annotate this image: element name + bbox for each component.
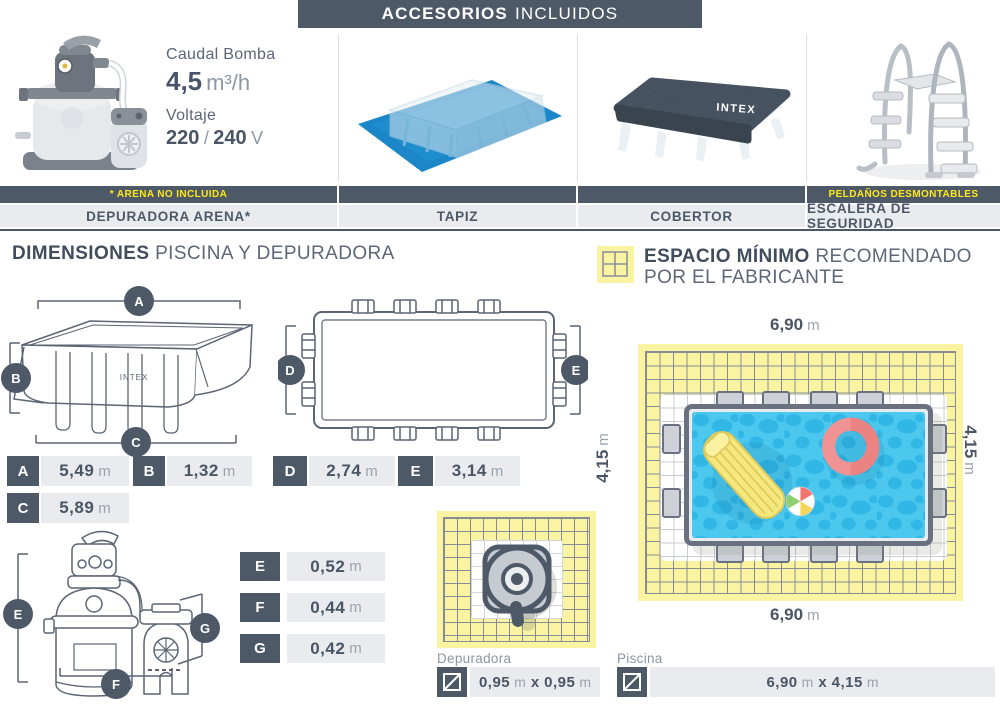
flow-unit: m³/h	[206, 70, 250, 95]
svg-text:F: F	[112, 677, 120, 692]
svg-text:C: C	[131, 435, 141, 450]
diagonal-icon	[622, 672, 642, 692]
pool-leg	[810, 544, 838, 563]
note-bar	[578, 186, 805, 203]
note-bar	[339, 186, 576, 203]
footprint-icon-depuradora	[437, 667, 467, 697]
dimensions-title: DIMENSIONES PISCINA Y DEPURADORA	[12, 243, 395, 265]
badge-d: D	[278, 355, 305, 385]
pump-badge-g: G	[240, 634, 280, 663]
svg-text:G: G	[200, 621, 210, 636]
infographic-page: ACCESORIOS INCLUIDOS Caudal Bomba 4,5m³/…	[0, 0, 1000, 709]
dimensions-title-light: PISCINA Y DEPURADORA	[155, 243, 395, 264]
voltage-unit: V	[251, 128, 263, 148]
pump-specs: Caudal Bomba 4,5m³/h Voltaje 220 / 240 V	[166, 46, 338, 150]
svg-text:B: B	[11, 371, 20, 386]
filter-top-view	[469, 533, 565, 635]
pool-top-view-drawing: D E	[278, 290, 588, 450]
badge-b: B	[1, 363, 31, 393]
measure-badge-a: A	[7, 456, 39, 486]
space-height-label-left: 4,15m	[593, 433, 613, 483]
measure-value-c: 5,89m	[41, 493, 129, 523]
badge-pump-f: F	[101, 669, 131, 699]
pool-leg	[762, 544, 790, 563]
voltage-value-1: 220	[166, 127, 199, 149]
pool-leg	[662, 424, 681, 454]
note-arena: * ARENA NO INCLUIDA	[0, 186, 337, 203]
pump-line-drawing: E F G	[2, 524, 239, 708]
min-space-title: ESPACIO MÍNIMO RECOMENDADO POR EL FABRIC…	[644, 246, 972, 288]
column-divider	[806, 34, 807, 182]
label-escalera: ESCALERA DE SEGURIDAD	[807, 205, 1000, 227]
sand-filter-image	[5, 32, 157, 182]
voltage-value-line: 220 / 240 V	[166, 127, 338, 150]
pool-cover-image: INTEX	[588, 46, 803, 176]
flow-value: 4,5	[166, 66, 202, 96]
measure-badge-c: C	[7, 493, 39, 523]
badge-pump-e: E	[3, 599, 33, 629]
space-width-label-bottom: 6,90m	[770, 605, 820, 625]
note-peldanos-text: PELDAÑOS DESMONTABLES	[829, 189, 979, 200]
pump-badge-e: E	[240, 552, 280, 581]
pool-leg	[856, 544, 884, 563]
voltage-value-2: 240	[213, 127, 246, 149]
column-divider	[338, 34, 339, 182]
dimensions-title-bold: DIMENSIONES	[12, 243, 149, 264]
diagonal-icon	[442, 672, 462, 692]
label-cobertor: COBERTOR	[578, 205, 805, 227]
pool-water-graphic	[692, 412, 925, 538]
footprint-icon-piscina	[617, 667, 647, 697]
svg-text:E: E	[572, 363, 581, 378]
svg-text:D: D	[285, 363, 294, 378]
pool-brand-text: INTEX	[120, 373, 149, 382]
ground-cloth-image	[350, 40, 570, 180]
measure-value-a: 5,49m	[41, 456, 129, 486]
min-space-grid	[638, 344, 963, 601]
column-divider	[577, 34, 578, 182]
label-depuradora: DEPURADORA ARENA*	[0, 205, 337, 227]
space-height-label-right: 4,15m	[960, 425, 980, 475]
ladder-image	[845, 32, 995, 184]
pump-value-e: 0,52m	[287, 552, 385, 581]
badge-a: A	[124, 286, 154, 316]
flow-value-line: 4,5m³/h	[166, 66, 338, 97]
section-divider-line	[0, 229, 1000, 231]
badge-e: E	[561, 355, 588, 385]
min-space-title-light1: RECOMENDADO	[815, 246, 971, 267]
depuradora-footprint-label: Depuradora	[437, 651, 511, 666]
piscina-footprint-value: 6,90m x 4,15m	[650, 667, 995, 697]
label-tapiz: TAPIZ	[339, 205, 576, 227]
min-space-title-bold: ESPACIO MÍNIMO	[644, 246, 810, 267]
banner-title-bold: ACCESORIOS	[382, 4, 508, 24]
badge-c: C	[121, 427, 151, 457]
voltage-label: Voltaje	[166, 107, 338, 125]
measure-badge-d: D	[273, 456, 307, 486]
pump-value-f: 0,44m	[287, 593, 385, 622]
svg-text:E: E	[14, 607, 23, 622]
pool-leg	[716, 544, 744, 563]
min-space-title-light2: POR EL FABRICANTE	[644, 267, 972, 288]
measure-badge-e: E	[398, 456, 433, 486]
accessories-banner: ACCESORIOS INCLUIDOS	[298, 0, 702, 28]
depuradora-footprint-value: 0,95m x 0,95m	[470, 667, 600, 697]
measure-value-d: 2,74m	[309, 456, 395, 486]
filter-space-grid	[437, 511, 596, 648]
voltage-separator: /	[204, 128, 209, 148]
piscina-footprint-label: Piscina	[617, 651, 663, 666]
note-arena-text: * ARENA NO INCLUIDA	[110, 189, 227, 200]
pump-badge-f: F	[240, 593, 280, 622]
svg-text:A: A	[134, 294, 144, 309]
banner-title-light: INCLUIDOS	[515, 4, 618, 24]
measure-value-e: 3,14m	[435, 456, 520, 486]
space-width-label-top: 6,90m	[770, 315, 820, 335]
badge-pump-g: G	[190, 613, 220, 643]
pool-leg	[662, 488, 681, 518]
pool-illustration	[684, 404, 933, 546]
pump-value-g: 0,42m	[287, 634, 385, 663]
beach-ball	[786, 487, 814, 515]
flow-label: Caudal Bomba	[166, 46, 338, 64]
pool-side-view-drawing: INTEX A B C	[0, 285, 272, 457]
measure-badge-b: B	[133, 456, 165, 486]
grid-icon	[597, 246, 634, 283]
measure-value-b: 1,32m	[167, 456, 252, 486]
